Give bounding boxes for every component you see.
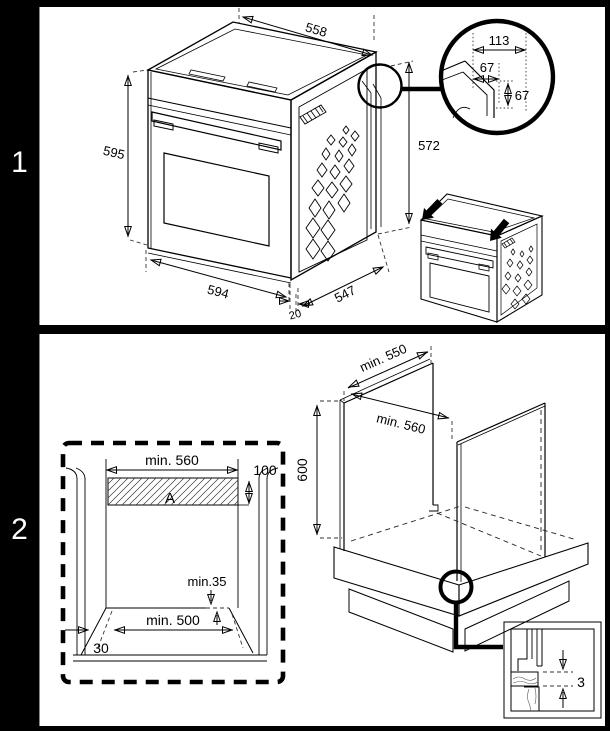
dim-body-height-value: 572 xyxy=(418,138,440,153)
dim-min-width: min. 560 xyxy=(351,391,452,441)
small-oven-diamond-pattern xyxy=(502,246,533,309)
oven-handling-drawing xyxy=(421,194,542,322)
dim-side-height: 600 xyxy=(294,401,342,538)
dim-depth: 547 xyxy=(296,235,389,313)
detail-chamfer-width-value: 67 xyxy=(480,60,494,75)
dim-side-height-value: 600 xyxy=(294,458,310,482)
gap-callout-connector xyxy=(456,602,503,647)
detail-source-circle xyxy=(359,65,402,108)
step-1-label: 1 xyxy=(0,146,39,180)
press-arrow-icon xyxy=(422,199,442,220)
dim-plinth-opening-width-value: min. 500 xyxy=(146,612,200,628)
dim-min-depth-value: min. 550 xyxy=(357,341,409,375)
cabinet-cutout-drawing: min. 560 A 100 xyxy=(40,334,605,726)
oven-top-face xyxy=(148,22,376,100)
panel-cabinet-cutout: min. 560 A 100 xyxy=(39,334,605,726)
dim-front-width-value: 594 xyxy=(206,282,231,302)
oven-dimension-drawing: 595 558 572 xyxy=(40,7,605,325)
dim-front-height-value: 595 xyxy=(102,143,127,162)
press-arrow-icon xyxy=(490,219,509,241)
cutout-front-view: min. 560 A 100 xyxy=(63,443,283,682)
dim-plinth-depth: 30 xyxy=(65,627,109,656)
installation-diagram-page: 1 2 xyxy=(0,0,610,731)
control-panel-strip xyxy=(299,69,367,272)
cabinet-isometric-view: 600 min. 550 min. 560 xyxy=(294,341,588,652)
dim-top-width: 558 xyxy=(239,8,374,58)
step-sidebar: 1 2 xyxy=(0,0,39,731)
step-2-label: 2 xyxy=(0,513,39,547)
dim-plinth-opening-width: min. 500 xyxy=(114,612,233,633)
rear-gap-detail-inset: 3 xyxy=(504,622,601,718)
dim-top-width-value: 558 xyxy=(304,19,329,39)
top-slot xyxy=(247,82,277,92)
dim-niche-width-value: min. 560 xyxy=(145,452,199,468)
dim-door-protrusion-value: 20 xyxy=(288,308,303,323)
detail-total-width-value: 113 xyxy=(489,33,510,48)
inset-border xyxy=(504,622,601,718)
oven-side-face xyxy=(291,52,376,280)
dim-plinth-depth-value: 30 xyxy=(93,640,109,656)
detail-chamfer-height-value: 67 xyxy=(515,88,529,103)
control-diamond-pattern xyxy=(306,126,359,261)
oven-door-window xyxy=(164,153,269,246)
dim-min-width-value: min. 560 xyxy=(375,410,427,437)
dim-depth-value: 547 xyxy=(332,282,358,305)
vent-area-label: A xyxy=(165,490,175,507)
dim-vent-height-value: 100 xyxy=(253,462,277,478)
dim-vent-height: 100 xyxy=(246,462,277,504)
dim-rear-gap-value: 3 xyxy=(577,674,585,690)
dim-niche-width: min. 560 xyxy=(106,452,238,473)
dim-front-height: 595 xyxy=(102,70,147,245)
oven-front-face xyxy=(148,70,291,278)
dim-front-width: 594 xyxy=(146,250,289,302)
oven-isometric-drawing xyxy=(148,22,381,283)
oven-handle xyxy=(152,112,281,150)
panel-oven-dimensions: 595 558 572 xyxy=(39,7,605,325)
vent-grille xyxy=(300,105,326,124)
gap-detail-source-circle xyxy=(441,572,472,603)
corner-detail-callout: 113 67 67 xyxy=(359,21,554,133)
dim-rear-clearance-value: min.35 xyxy=(187,574,226,589)
base-front-right xyxy=(459,543,588,616)
